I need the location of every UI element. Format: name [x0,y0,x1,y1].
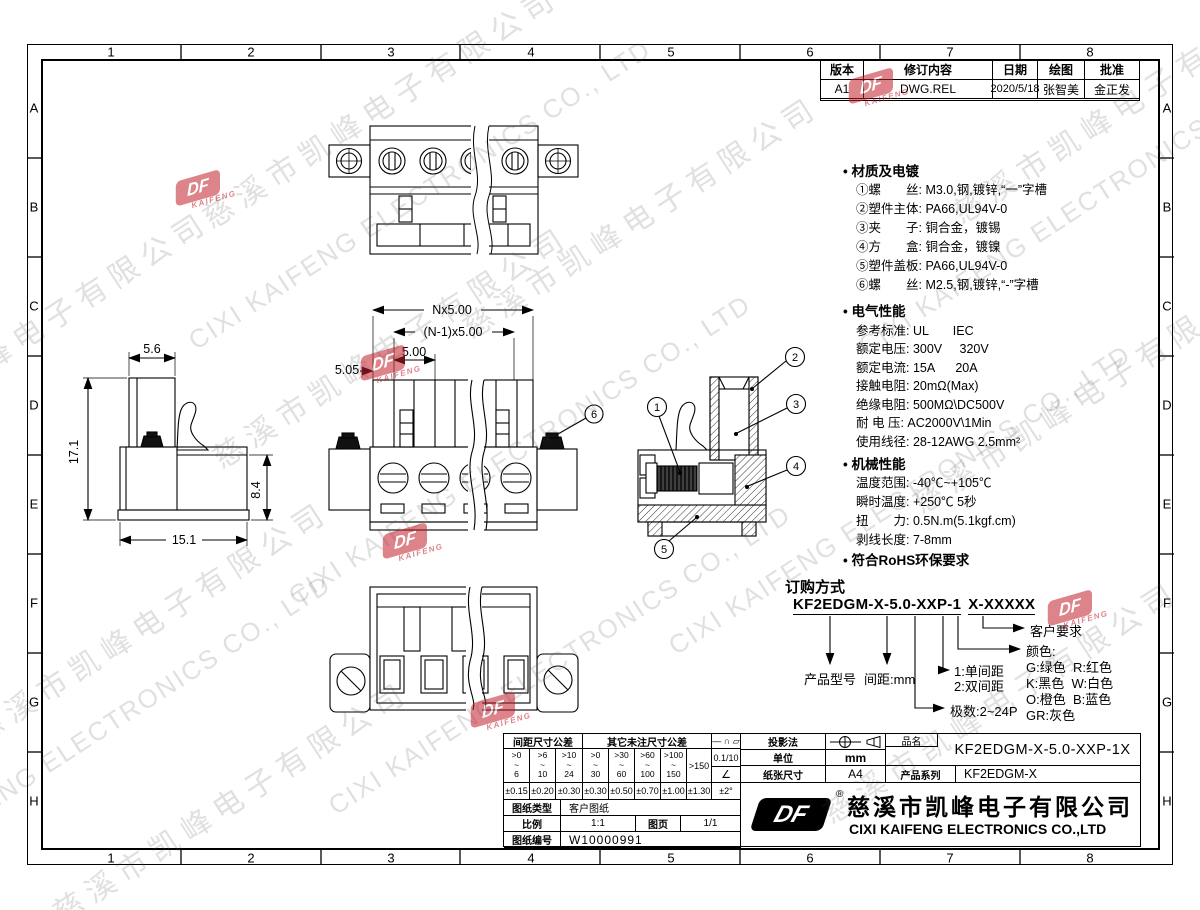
engineering-drawing-page: 1 2 3 4 5 6 7 8 1 2 3 4 5 6 7 8 A B C D … [0,0,1200,910]
pn-suffix: X-XXXXX [968,596,1035,615]
zone-row-label: C [1162,300,1171,313]
product-series-value: KF2EDGM-X [956,766,1141,783]
ordering-color-line: GR:灰色 [1026,705,1075,724]
zone-col-label: 3 [387,852,394,865]
tol-range: >6 ~ 10 [530,749,556,783]
mechanical-title: • 机械性能 [843,455,1143,474]
pn-main: KF2EDGM-X-5.0-XXP-1 [793,596,961,615]
material-spec-section: • 材质及电镀 ①螺 丝: M3.0,钢,镀锌,“一”字槽 ②塑件主体: PA6… [843,162,1143,295]
tol-range: >0 ~ 6 [504,749,530,783]
page-value: 1/1 [681,816,741,832]
tol-symbols: — ∩ ▱ [712,734,741,749]
spec-line: 参考标准: UL IEC [843,322,1143,341]
tol-value: ±0.30 [583,783,609,800]
zone-row-label: A [30,102,39,115]
zone-col-label: 3 [387,46,394,59]
sheet-type-value: 客户图纸 [561,800,741,816]
rev-header-content: 修订内容 [864,60,993,80]
zone-col-label: 5 [667,46,674,59]
rev-approved-by: 金正发 [1085,80,1140,99]
zone-row-label: D [1162,399,1171,412]
electrical-title: • 电气性能 [843,303,1143,322]
scale-label: 比例 [504,816,561,832]
tol-value: ±0.20 [530,783,556,800]
tol-range: >30 ~ 60 [609,749,635,783]
ordering-poles: 极数:2~24P [950,701,1018,720]
rev-header-approved: 批准 [1085,60,1140,80]
bullet-icon: • [843,553,848,568]
zone-row-label: D [29,399,38,412]
zone-row-label: H [1162,795,1171,808]
zone-row-label: F [30,597,38,610]
spec-line: ③夹 子: 铜合金，镀锡 [843,219,1143,238]
ordering-customer: 客户要求 [1030,621,1082,640]
kaifeng-logo: DF [750,798,833,831]
unit-value: mm [826,750,886,766]
zone-row-label: B [1163,201,1172,214]
ordering-pitch: 间距:mm [864,669,915,688]
zone-row-label: F [1163,597,1171,610]
zone-col-label: 6 [806,46,813,59]
tol-value: ±0.70 [635,783,661,800]
tol-range: >60 ~ 100 [635,749,661,783]
tol-value: ±1.00 [661,783,687,800]
tol-value: ±0.50 [609,783,635,800]
zone-col-label: 4 [527,852,534,865]
zone-col-label: 2 [247,46,254,59]
first-angle-projection-icon [828,735,884,749]
ordering-row2: 2:双间距 [954,676,1004,695]
rev-header-date: 日期 [993,60,1038,80]
tol-value: ±0.30 [556,783,583,800]
zone-row-label: G [1162,696,1172,709]
tol-range: >100 ~ 150 [661,749,687,783]
spec-line: 额定电压: 300V 320V [843,340,1143,359]
tol-other-header: 其它未注尺寸公差 [583,734,712,749]
bullet-icon: • [843,304,848,319]
zone-row-label: H [29,795,38,808]
spec-line: ④方 盒: 铜合金，镀镍 [843,238,1143,257]
scale-value: 1:1 [561,816,636,832]
ordering-title: 订购方式 [785,576,845,597]
zone-row-label: B [30,201,39,214]
projection-label: 投影法 [741,734,826,750]
spec-line: ①螺 丝: M3.0,钢,镀锌,“一”字槽 [843,181,1143,200]
spec-line: ⑤塑件盖板: PA66,UL94V-0 [843,257,1143,276]
spec-line: 耐 电 压: AC2000V\1Min [843,414,1143,433]
tol-range: >10 ~ 24 [556,749,583,783]
bullet-icon: • [843,457,848,472]
spec-line: 剥线长度: 7-8mm [843,531,1143,550]
rev-header-drawn: 绘图 [1038,60,1085,80]
tol-flatness: 0.1/10 [712,749,741,767]
zone-col-label: 1 [107,852,114,865]
paper-size-label: 纸张尺寸 [741,766,826,783]
paper-size-value: A4 [826,766,886,783]
zone-col-label: 6 [806,852,813,865]
zone-row-label: A [1163,102,1172,115]
projection-symbol-cell [826,734,886,750]
spec-line: 额定电流: 15A 20A [843,359,1143,378]
product-series-label: 产品系列 [886,766,956,783]
zone-col-label: 2 [247,852,254,865]
sheet-type-label: 图纸类型 [504,800,561,816]
title-block: 间距尺寸公差 其它未注尺寸公差 — ∩ ▱ >0 ~ 6 >6 ~ 10 >10… [503,733,1141,847]
revision-table: 版本 修订内容 日期 绘图 批准 A1 DWG.REL 2020/5/18 张智… [820,59,1140,101]
zone-col-label: 4 [527,46,534,59]
ordering-part-number: KF2EDGM-X-5.0-XXP-1X-XXXXX [793,596,1035,613]
rev-header-version: 版本 [821,60,864,80]
rohs-note: • 符合RoHS环保要求 [843,551,1143,570]
spec-line: 使用线径: 28-12AWG 2.5mm² [843,433,1143,452]
zone-row-label: G [29,696,39,709]
product-name-label: 品名 [886,734,938,747]
spec-line: 瞬时温度: +250℃ 5秒 [843,493,1143,512]
zone-col-label: 7 [946,852,953,865]
spec-line: 扭 力: 0.5N.m(5.1kgf.cm) [843,512,1143,531]
spec-line: ⑥螺 丝: M2.5,钢,镀锌,“-”字槽 [843,276,1143,295]
tol-range-last: >150 [687,749,712,783]
spec-line: 绝缘电阻: 500MΩ\DC500V [843,396,1143,415]
tol-angle-icon: ∠ [712,767,741,783]
zone-row-label: E [1163,498,1172,511]
mechanical-spec-section: • 机械性能 温度范围: -40℃~+105℃ 瞬时温度: +250℃ 5秒 扭… [843,455,1143,550]
zone-col-label: 8 [1086,46,1093,59]
drawing-no-value: W10000991 [561,832,741,848]
unit-label: 单位 [741,750,826,766]
zone-col-label: 5 [667,852,674,865]
company-block: DF ® 慈溪市凯峰电子有限公司 CIXI KAIFENG ELECTRONIC… [741,783,1140,846]
tol-angle-value: ±2° [712,783,741,800]
ordering-product-model: 产品型号 [804,669,856,688]
registered-mark: ® [836,789,843,800]
zone-row-label: E [30,498,39,511]
electrical-spec-section: • 电气性能 参考标准: UL IEC 额定电压: 300V 320V 额定电流… [843,303,1143,451]
zone-col-label: 7 [946,46,953,59]
page-label: 图页 [636,816,681,832]
rev-drawn-by: 张智美 [1038,80,1085,99]
spec-line: ②塑件主体: PA66,UL94V-0 [843,200,1143,219]
zone-row-label: C [29,300,38,313]
rev-content: DWG.REL [864,80,993,99]
tol-value: ±0.15 [504,783,530,800]
material-title: • 材质及电镀 [843,162,1143,181]
tol-range: >0 ~ 30 [583,749,609,783]
company-name-cn: 慈溪市凯峰电子有限公司 [847,788,1133,822]
bullet-icon: • [843,164,848,179]
company-name-en: CIXI KAIFENG ELECTRONICS CO.,LTD [849,821,1106,837]
tol-value: ±1.30 [687,783,712,800]
tol-pitch-header: 间距尺寸公差 [504,734,583,749]
zone-col-label: 8 [1086,852,1093,865]
spec-line: 温度范围: -40℃~+105℃ [843,474,1143,493]
rev-date: 2020/5/18 [993,80,1038,99]
rev-version: A1 [821,80,864,99]
drawing-no-label: 图纸编号 [504,832,561,848]
spec-line: 接触电阻: 20mΩ(Max) [843,377,1143,396]
zone-col-label: 1 [107,46,114,59]
